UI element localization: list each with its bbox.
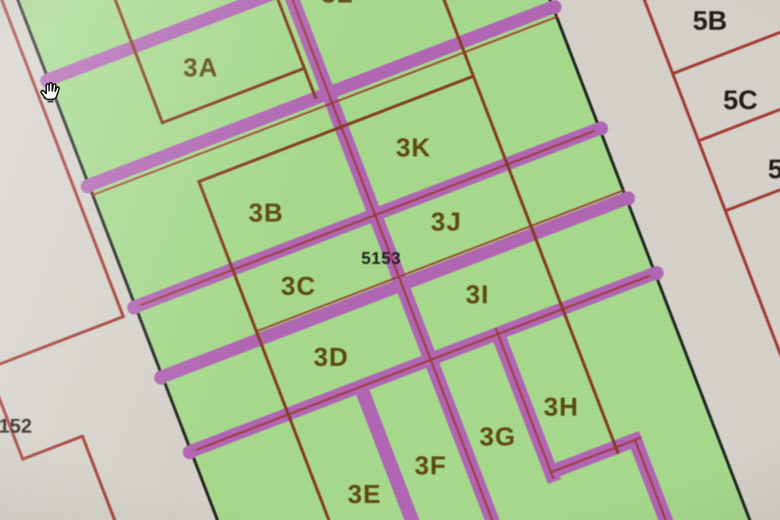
parcel-label-5B: 5B — [693, 6, 728, 37]
parcel-label-3H: 3H — [544, 392, 579, 423]
map-viewport[interactable]: 3L 3A 3K 3B 3J 3C 3I 3D 3H 3G 3F 3E 5153… — [0, 0, 780, 520]
parcel-label-5-partial: 5 — [768, 154, 780, 185]
parcel-label-152: 152 — [0, 416, 32, 439]
parcel-label-3J: 3J — [431, 207, 462, 238]
parcel-label-3L: 3L — [321, 0, 353, 9]
parcel-label-3G: 3G — [479, 421, 516, 452]
parcel-label-5C: 5C — [723, 85, 758, 116]
road-number-label-5153: 5153 — [361, 249, 401, 269]
hand-grab-cursor-icon — [34, 74, 68, 112]
outer-parcel-line — [0, 367, 25, 461]
parcel-label-3D: 3D — [314, 342, 349, 373]
outer-parcel-line — [0, 315, 125, 371]
parcel-label-3A: 3A — [183, 52, 218, 83]
parcel-label-3K: 3K — [396, 132, 431, 163]
parcel-label-3B: 3B — [249, 198, 284, 229]
map-canvas: 3L 3A 3K 3B 3J 3C 3I 3D 3H 3G 3F 3E 5153… — [0, 0, 780, 520]
outer-parcel-line — [80, 434, 122, 520]
parcel-label-3E: 3E — [348, 479, 382, 510]
parcel-label-3C: 3C — [281, 271, 316, 302]
parcel-label-3I: 3I — [466, 279, 490, 310]
parcel-label-3F: 3F — [415, 450, 447, 481]
